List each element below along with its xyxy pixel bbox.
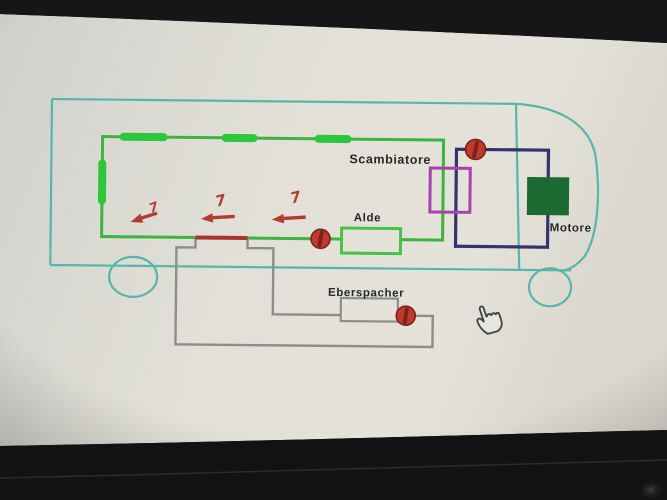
- screen-vignette: [0, 14, 667, 446]
- power-led: [637, 479, 665, 500]
- monitor-photo: 7 7 7 Scambiatore Alde Eberspacher Motor…: [0, 0, 667, 500]
